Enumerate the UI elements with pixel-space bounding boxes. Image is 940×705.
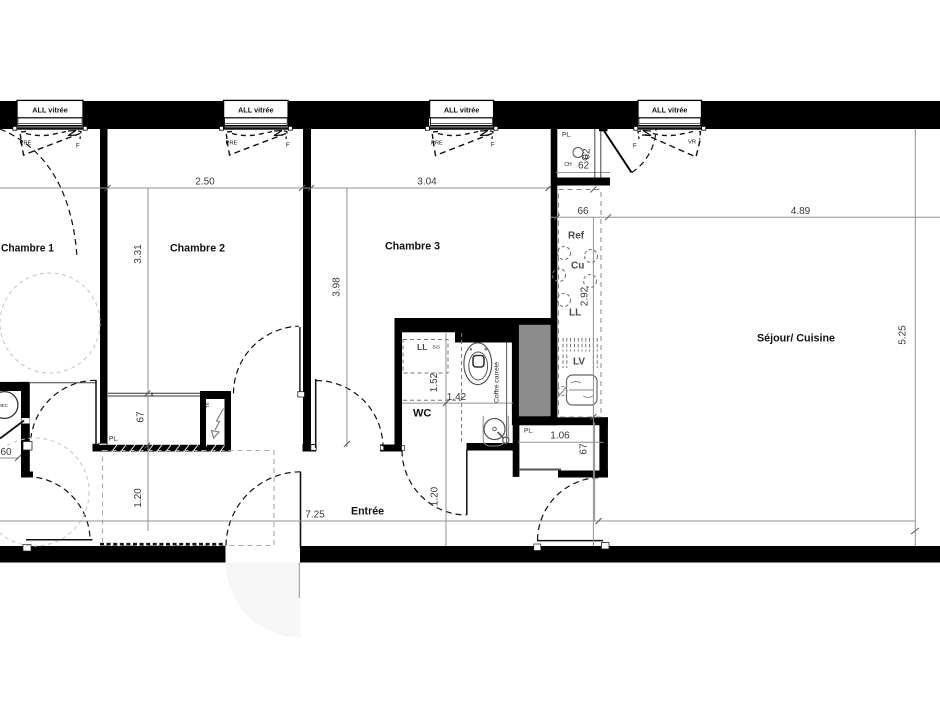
svg-text:BIS: BIS [433, 345, 441, 351]
svg-text:Coffre carrelé: Coffre carrelé [494, 362, 501, 403]
svg-text:ALL vitrée: ALL vitrée [444, 105, 480, 114]
svg-text:1.20: 1.20 [133, 488, 144, 508]
svg-text:66: 66 [577, 206, 589, 217]
svg-text:62: 62 [582, 148, 593, 160]
svg-text:F: F [633, 144, 637, 150]
svg-text:3.04: 3.04 [417, 177, 437, 188]
svg-text:PL.: PL. [109, 436, 119, 443]
svg-text:1.52: 1.52 [429, 372, 440, 392]
svg-text:PL.: PL. [562, 132, 572, 139]
svg-text:PRE: PRE [431, 141, 443, 147]
svg-text:5.25: 5.25 [898, 325, 909, 345]
svg-text:2.50: 2.50 [195, 177, 215, 188]
svg-text:PRE: PRE [226, 141, 238, 147]
svg-text:CH: CH [564, 162, 572, 168]
svg-text:2.92: 2.92 [580, 286, 591, 306]
svg-text:1.06: 1.06 [550, 430, 570, 441]
svg-text:7.25: 7.25 [305, 510, 325, 521]
svg-text:Cu: Cu [571, 261, 584, 272]
svg-text:Chambre 2: Chambre 2 [170, 243, 225, 255]
svg-text:Séjour/ Cuisine: Séjour/ Cuisine [757, 333, 835, 345]
svg-text:VR: VR [688, 140, 696, 146]
svg-text:1.42: 1.42 [447, 392, 467, 403]
svg-text:MEC: MEC [0, 403, 9, 408]
svg-text:ALL vitrée: ALL vitrée [238, 105, 274, 114]
svg-text:3.31: 3.31 [133, 244, 144, 264]
svg-text:60: 60 [1, 447, 13, 458]
svg-text:WC: WC [413, 408, 431, 420]
svg-text:Entrée: Entrée [351, 506, 384, 518]
svg-text:67: 67 [579, 443, 590, 455]
svg-text:67: 67 [136, 411, 147, 423]
svg-text:ALL vitrée: ALL vitrée [652, 105, 688, 114]
svg-text:ALL vitrée: ALL vitrée [32, 105, 68, 114]
svg-text:TE: TE [205, 402, 210, 408]
svg-text:F: F [491, 143, 495, 149]
svg-text:LL: LL [569, 308, 581, 319]
svg-text:Chambre 3: Chambre 3 [385, 241, 440, 253]
svg-text:1.20: 1.20 [430, 486, 441, 506]
svg-text:F: F [76, 144, 80, 150]
svg-text:LL: LL [417, 342, 427, 352]
svg-text:F: F [286, 143, 290, 149]
svg-text:3.98: 3.98 [332, 277, 343, 297]
svg-text:Ref: Ref [568, 231, 585, 242]
svg-text:4.89: 4.89 [791, 206, 811, 217]
svg-text:Chambre 1: Chambre 1 [1, 243, 54, 255]
svg-text:62: 62 [578, 161, 590, 172]
svg-text:LV: LV [573, 357, 585, 368]
svg-text:PRE: PRE [20, 141, 32, 147]
svg-text:PL.: PL. [524, 428, 534, 435]
